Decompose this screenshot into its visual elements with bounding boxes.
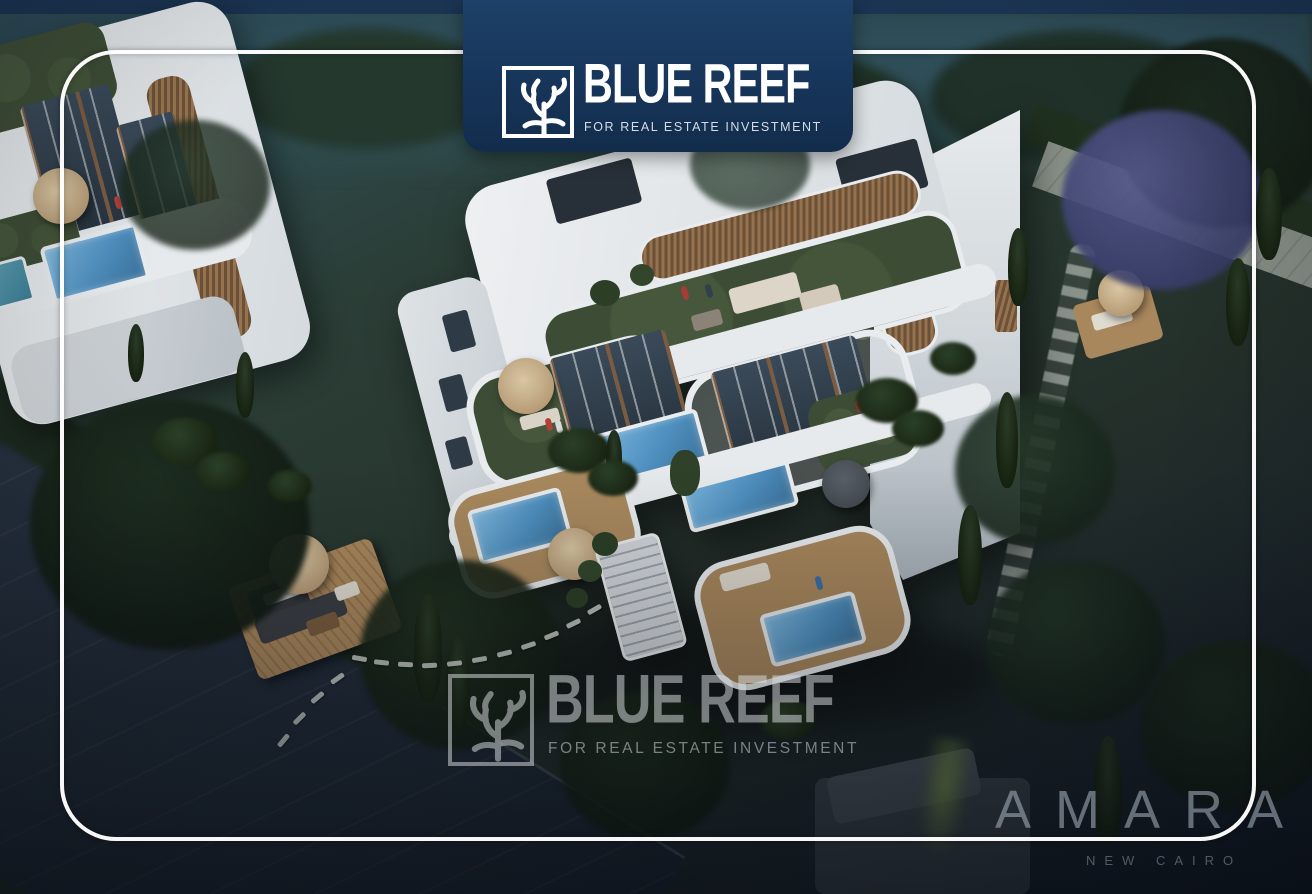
project-location: NEW CAIRO [1086,853,1242,868]
entrance-planter-3 [566,588,588,608]
watermark: BLUE REEF FOR REAL ESTATE INVESTMENT [444,664,864,784]
brand-tagline: FOR REAL ESTATE INVESTMENT [584,120,834,134]
brand-coral-logo-box [502,66,574,138]
entrance-planter-4 [670,450,700,496]
promo-image: BLUE REEF FOR REAL ESTATE INVESTMENT AMA… [0,0,1312,894]
left-villa [0,18,315,478]
side-garden-deck [1070,270,1180,360]
coral-icon [459,685,537,769]
side-deck-umbrella [1098,270,1144,316]
coral-icon [512,76,576,140]
watermark-coral-logo-box [448,674,534,766]
brand-name: BLUE REEF [583,51,812,122]
entrance-planter-1 [592,532,618,556]
balcony-left-umbrella [498,358,554,414]
watermark-tagline: FOR REAL ESTATE INVESTMENT [548,740,868,758]
project-name: AMARA [995,779,1307,841]
garden-deck [225,520,425,680]
cypress-2 [1226,258,1250,346]
watermark-brand-name: BLUE REEF [546,660,834,739]
center-villa [420,90,1060,750]
brand-banner: BLUE REEF FOR REAL ESTATE INVESTMENT [463,0,853,152]
villa-east-wall-slat-niche [995,280,1017,332]
roof-garden-plant-2 [630,264,654,286]
roof-garden-plant-1 [590,280,620,306]
entrance-planter-2 [578,560,602,582]
deck-umbrella [269,534,329,594]
balcony-right-umbrella [822,460,870,508]
